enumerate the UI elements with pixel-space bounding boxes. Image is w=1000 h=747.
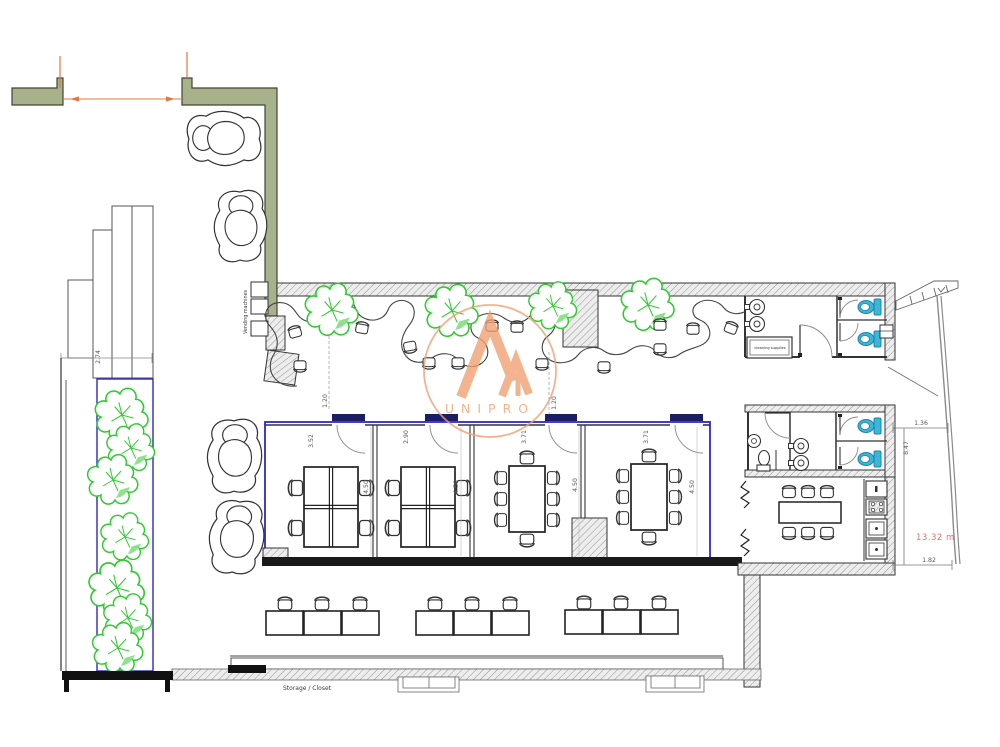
dim-right-area: 13.32 m	[916, 533, 955, 543]
kitchen-table-group	[779, 486, 841, 540]
kitchen-sink	[866, 519, 887, 538]
dim-room-depth-1: 4.50	[363, 480, 370, 494]
dim-right-top: 1.36	[914, 420, 928, 427]
office-bottom-wall	[262, 557, 742, 566]
dim-room-depth-3: 4.50	[572, 478, 579, 492]
quad-desk-cluster	[288, 467, 373, 547]
right-dimensions: 1.36 8.47 13.32 m 1.82	[893, 420, 955, 570]
cleaning-supplies-label: cleaning supplies	[754, 346, 785, 350]
watermark: UNIPRO	[424, 305, 556, 437]
stove	[866, 499, 887, 515]
washroom-bottom	[745, 405, 895, 477]
dim-planter-width: 2.74	[95, 350, 102, 364]
conference-table	[495, 451, 560, 547]
sofa	[206, 498, 268, 577]
left-wall	[61, 358, 66, 671]
storage-zone: Storage / Closet	[62, 656, 761, 692]
desk-row	[266, 597, 379, 635]
column-meeting	[572, 518, 607, 560]
watermark-brand: UNIPRO	[445, 401, 535, 416]
storage-closet-label: Storage / Closet	[283, 685, 332, 692]
floor-plan-canvas: 2.74 Vending machines	[0, 0, 1000, 747]
kitchen-sink	[866, 540, 887, 559]
kitchen	[738, 477, 895, 687]
storage-counter	[231, 658, 723, 669]
washroom-bottom-left-door	[765, 413, 790, 438]
dim-room-depth-2: 4.50	[453, 480, 460, 494]
dim-meeting-2: 3.71	[643, 430, 650, 444]
entry-dimension-line	[63, 96, 182, 101]
toilet-white	[757, 450, 776, 471]
kitchen-counter	[864, 479, 887, 561]
desk-row	[565, 596, 678, 634]
stair-block: 2.74	[61, 206, 153, 378]
toilet	[858, 331, 881, 347]
wall-break-symbol	[741, 481, 749, 508]
dim-right-bottom: 1.82	[922, 557, 936, 564]
planter-strip	[88, 379, 155, 672]
toilet	[858, 451, 881, 467]
sofa	[207, 419, 261, 493]
wall-break-symbol	[741, 529, 749, 556]
right-wing: 1.36 8.47 13.32 m 1.82	[888, 281, 960, 570]
desk-row	[416, 597, 529, 635]
quad-desk-cluster	[385, 467, 470, 547]
cleaning-supplies-closet: cleaning supplies	[747, 337, 792, 358]
column-small	[266, 316, 285, 350]
dim-meeting-1: 3.71	[521, 430, 528, 444]
open-desk-area	[266, 596, 678, 635]
watermark-logo-icon	[461, 323, 529, 397]
bottom-left-wall	[62, 671, 173, 680]
dim-right-height: 8.47	[903, 441, 910, 455]
vending-machines-label: Vending machines	[243, 290, 249, 335]
washroom-top-door	[798, 325, 832, 357]
curtain-wall	[937, 296, 956, 564]
wc-stall-doors-top	[838, 297, 858, 356]
lounge-sofas	[187, 111, 267, 576]
vending-machines: Vending machines	[243, 282, 268, 336]
wardrobe-cabinet	[398, 677, 459, 692]
toilet	[858, 299, 881, 315]
sofa	[187, 111, 261, 165]
dim-lounge-left: 1.20	[322, 394, 329, 408]
wardrobe-cabinet	[646, 676, 704, 692]
ramp-structure	[896, 281, 958, 310]
conference-table	[617, 449, 682, 545]
sofa	[214, 190, 267, 261]
toilet	[858, 418, 881, 434]
dim-office-2: 2.90	[403, 430, 410, 444]
floor-plan-page: 2.74 Vending machines	[0, 0, 1000, 747]
dim-room-depth-4: 4.50	[689, 480, 696, 494]
dim-office-1: 3.52	[308, 434, 315, 448]
dim-lounge-right: 1.20	[551, 396, 558, 410]
